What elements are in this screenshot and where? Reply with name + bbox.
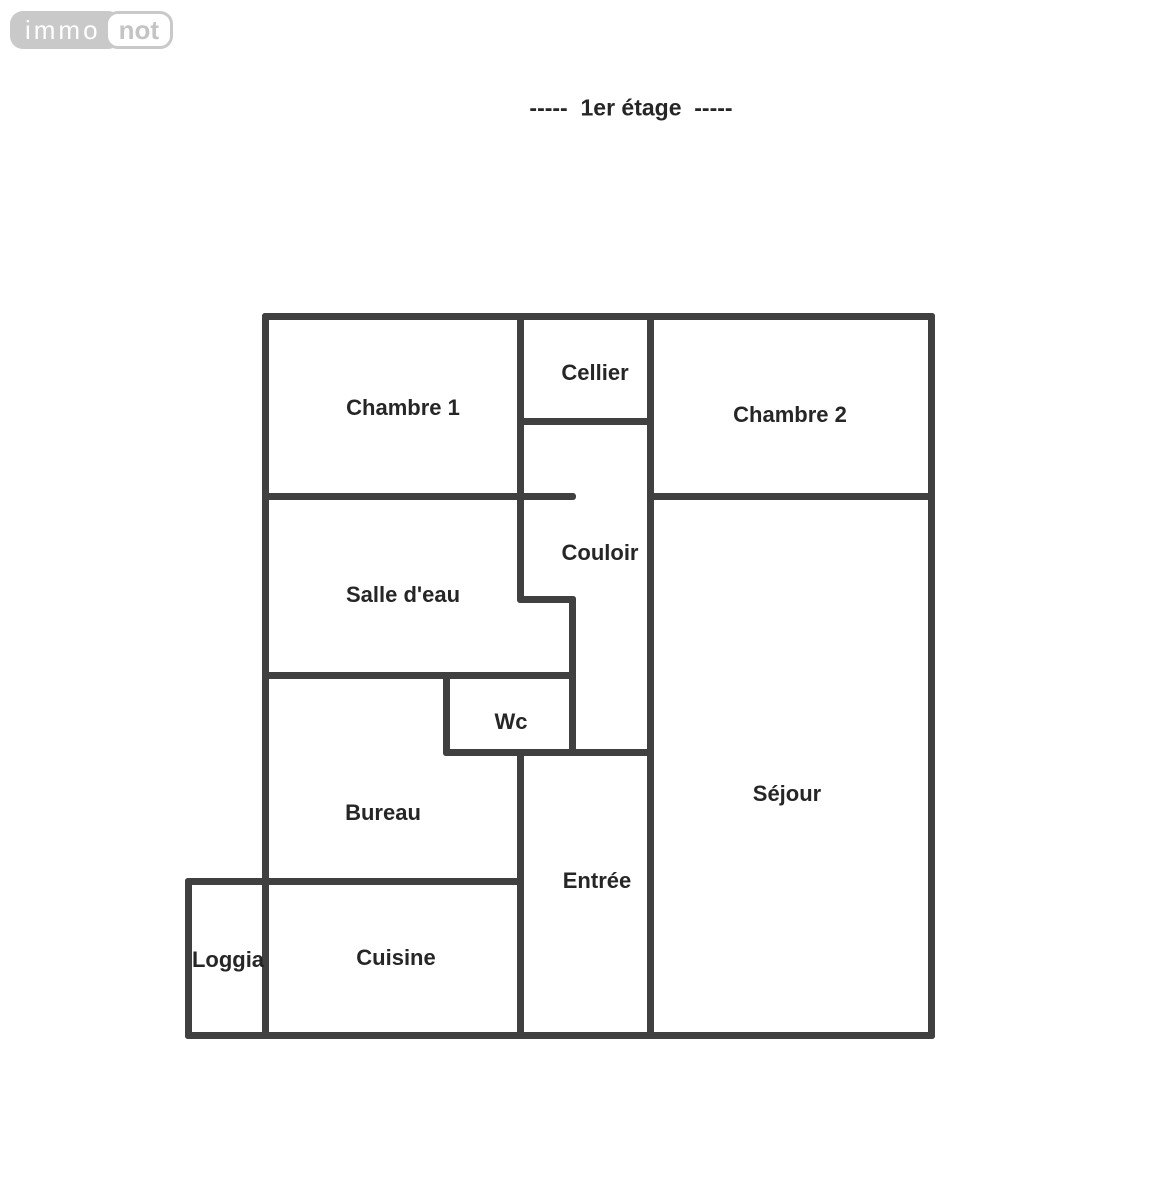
wall-salle-deau-bottom bbox=[262, 672, 576, 679]
room-label-chambre-2: Chambre 2 bbox=[733, 402, 847, 428]
floorplan-page: immo not ----- 1er étage ----- Chambre 1… bbox=[0, 0, 1154, 1200]
wall-bureau-entree-divider bbox=[517, 749, 524, 1039]
wall-wc-left bbox=[443, 672, 450, 756]
room-label-sejour: Séjour bbox=[753, 781, 821, 807]
room-label-entree: Entrée bbox=[563, 868, 631, 894]
wall-outer-right bbox=[928, 313, 935, 1039]
wall-cellier-chambre2-divider bbox=[647, 313, 654, 1039]
wall-chambre1-bottom bbox=[262, 493, 576, 500]
wall-loggia-left bbox=[185, 878, 192, 1039]
immonot-logo: immo not bbox=[10, 11, 173, 49]
logo-immo-segment: immo bbox=[10, 11, 121, 49]
room-label-cellier: Cellier bbox=[561, 360, 628, 386]
wall-chambre1-cellier-divider bbox=[517, 313, 524, 602]
room-label-loggia: Loggia bbox=[192, 947, 264, 973]
wall-outer-top bbox=[262, 313, 935, 320]
room-label-wc: Wc bbox=[495, 709, 528, 735]
wall-couloir-jog bbox=[517, 596, 576, 603]
wall-outer-bottom bbox=[185, 1032, 935, 1039]
room-label-salle-d-eau: Salle d'eau bbox=[346, 582, 460, 608]
room-label-couloir: Couloir bbox=[562, 540, 639, 566]
logo-not-segment: not bbox=[105, 11, 173, 49]
wall-wc-entree-top bbox=[443, 749, 654, 756]
wall-chambre2-bottom bbox=[647, 493, 935, 500]
floor-title: ----- 1er étage ----- bbox=[529, 95, 732, 122]
wall-cellier-bottom bbox=[517, 418, 654, 425]
room-label-cuisine: Cuisine bbox=[356, 945, 435, 971]
room-label-bureau: Bureau bbox=[345, 800, 421, 826]
wall-loggia-top-bureau-bottom bbox=[185, 878, 524, 885]
room-label-chambre-1: Chambre 1 bbox=[346, 395, 460, 421]
